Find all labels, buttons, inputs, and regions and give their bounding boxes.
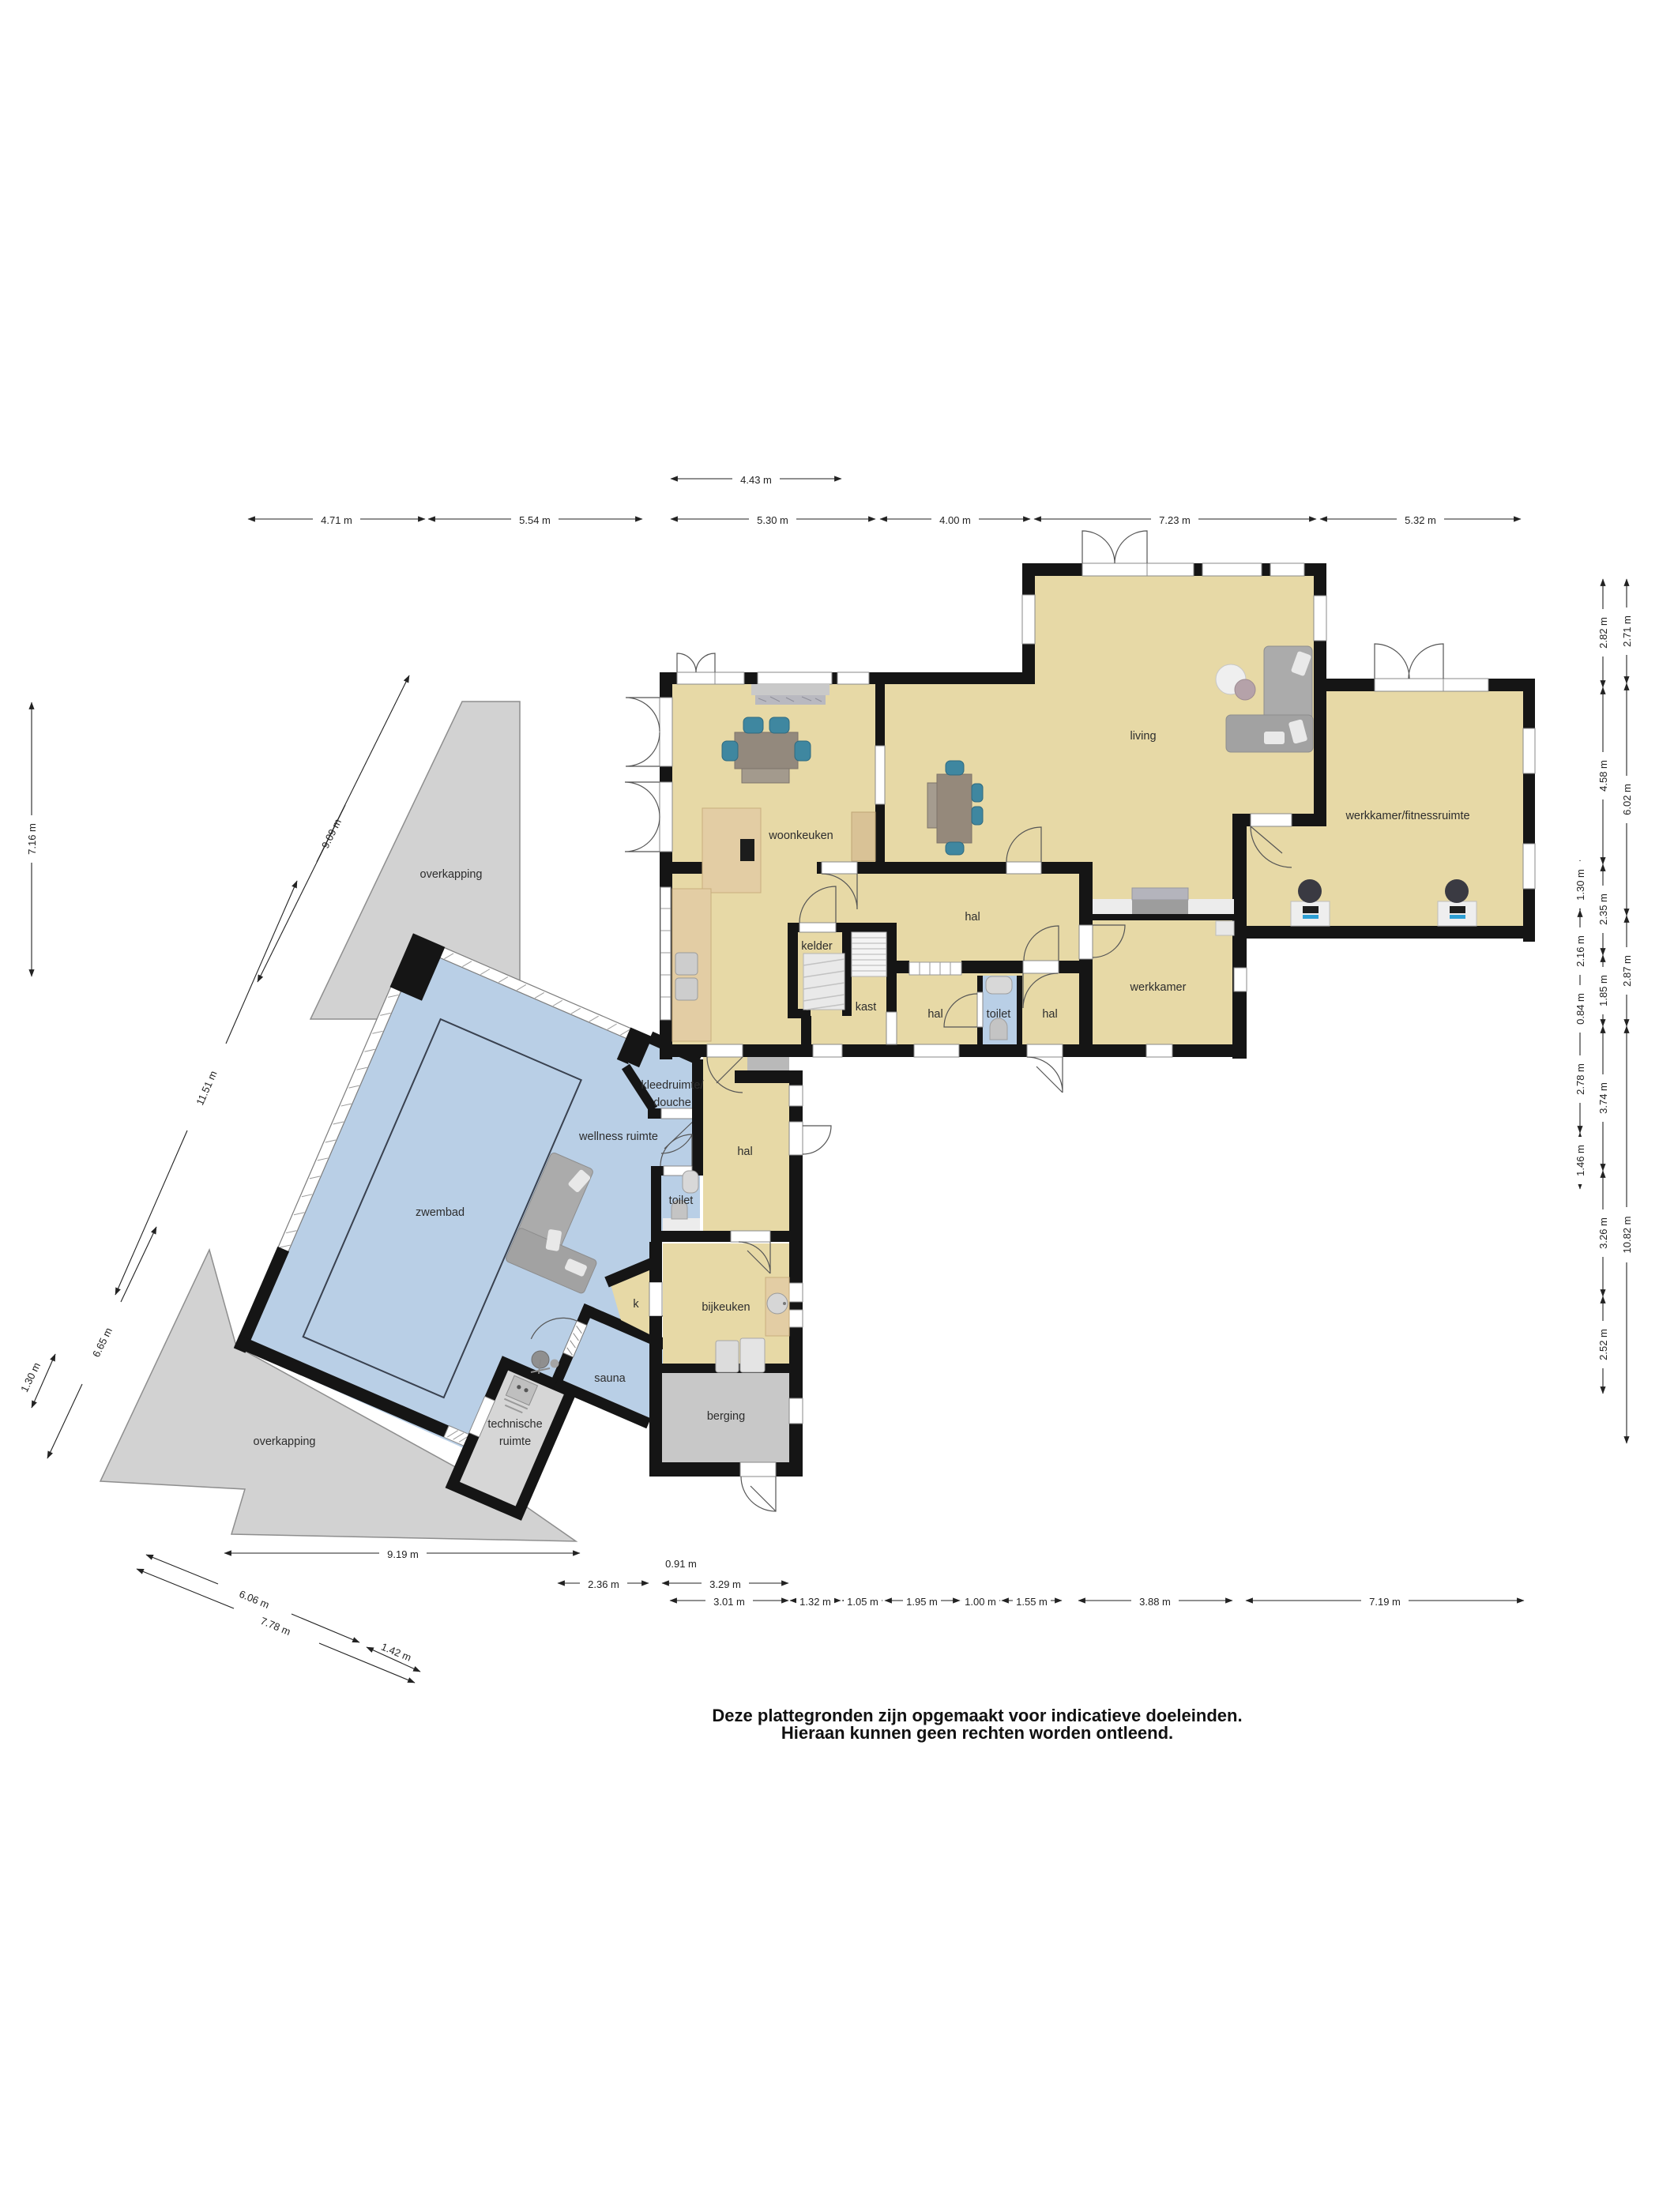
svg-text:kleedruimte/: kleedruimte/	[641, 1079, 705, 1092]
svg-text:1.55 m: 1.55 m	[1016, 1596, 1048, 1608]
svg-text:5.32 m: 5.32 m	[1405, 514, 1436, 526]
svg-text:bijkeuken: bijkeuken	[702, 1301, 750, 1314]
svg-text:0.91 m: 0.91 m	[665, 1558, 697, 1570]
svg-text:7.16 m: 7.16 m	[26, 823, 38, 855]
svg-text:overkapping: overkapping	[420, 868, 483, 881]
svg-text:toilet: toilet	[669, 1194, 694, 1207]
svg-text:2.35 m: 2.35 m	[1597, 893, 1609, 925]
svg-text:7.19 m: 7.19 m	[1369, 1596, 1401, 1608]
svg-text:ruimte: ruimte	[499, 1435, 531, 1448]
svg-text:5.54 m: 5.54 m	[519, 514, 551, 526]
svg-text:2.78 m: 2.78 m	[1574, 1063, 1586, 1095]
svg-text:hal: hal	[927, 1008, 942, 1021]
svg-text:hal: hal	[965, 911, 980, 924]
svg-text:4.00 m: 4.00 m	[939, 514, 971, 526]
svg-text:5.30 m: 5.30 m	[757, 514, 788, 526]
svg-text:0.84 m: 0.84 m	[1574, 993, 1586, 1025]
svg-text:1.32 m: 1.32 m	[799, 1596, 831, 1608]
svg-text:werkkamer/fitnessruimte: werkkamer/fitnessruimte	[1345, 810, 1469, 822]
svg-text:3.88 m: 3.88 m	[1139, 1596, 1171, 1608]
svg-text:hal: hal	[1042, 1008, 1057, 1021]
svg-text:wellness ruimte: wellness ruimte	[578, 1130, 658, 1143]
svg-text:4.71 m: 4.71 m	[321, 514, 352, 526]
svg-text:1.30 m: 1.30 m	[1574, 869, 1586, 901]
svg-text:living: living	[1130, 730, 1156, 743]
svg-text:3.01 m: 3.01 m	[713, 1596, 745, 1608]
svg-text:kelder: kelder	[801, 940, 833, 953]
svg-text:kast: kast	[856, 1001, 877, 1014]
svg-text:4.43 m: 4.43 m	[740, 474, 772, 486]
svg-text:4.58 m: 4.58 m	[1597, 760, 1609, 792]
svg-text:2.87 m: 2.87 m	[1621, 955, 1633, 987]
svg-text:6.02 m: 6.02 m	[1621, 784, 1633, 815]
svg-text:zwembad: zwembad	[416, 1206, 465, 1219]
svg-text:overkapping: overkapping	[254, 1435, 316, 1448]
svg-text:1.85 m: 1.85 m	[1597, 975, 1609, 1006]
svg-text:woonkeuken: woonkeuken	[768, 829, 833, 842]
svg-text:9.19 m: 9.19 m	[387, 1548, 419, 1560]
svg-text:2.36 m: 2.36 m	[588, 1578, 619, 1590]
svg-text:3.29 m: 3.29 m	[709, 1578, 741, 1590]
svg-text:1.95 m: 1.95 m	[906, 1596, 938, 1608]
svg-text:hal: hal	[737, 1145, 752, 1158]
svg-text:2.16 m: 2.16 m	[1574, 935, 1586, 967]
svg-text:technische: technische	[487, 1418, 542, 1431]
svg-text:3.26 m: 3.26 m	[1597, 1217, 1609, 1249]
svg-text:1.00 m: 1.00 m	[965, 1596, 996, 1608]
svg-text:sauna: sauna	[594, 1372, 626, 1385]
svg-text:2.52 m: 2.52 m	[1597, 1329, 1609, 1360]
svg-text:1.46 m: 1.46 m	[1574, 1145, 1586, 1176]
svg-text:3.74 m: 3.74 m	[1597, 1082, 1609, 1114]
svg-text:werkkamer: werkkamer	[1130, 981, 1187, 994]
svg-text:1.05 m: 1.05 m	[847, 1596, 878, 1608]
svg-text:7.23 m: 7.23 m	[1159, 514, 1191, 526]
svg-text:Hieraan kunnen geen rechten wo: Hieraan kunnen geen rechten worden ontle…	[781, 1723, 1173, 1743]
svg-text:10.82 m: 10.82 m	[1621, 1217, 1633, 1254]
svg-text:2.82 m: 2.82 m	[1597, 617, 1609, 649]
svg-text:douche: douche	[653, 1097, 691, 1109]
svg-text:2.71 m: 2.71 m	[1621, 615, 1633, 647]
svg-text:berging: berging	[707, 1410, 745, 1423]
svg-text:k: k	[633, 1298, 639, 1311]
svg-text:toilet: toilet	[987, 1008, 1011, 1021]
